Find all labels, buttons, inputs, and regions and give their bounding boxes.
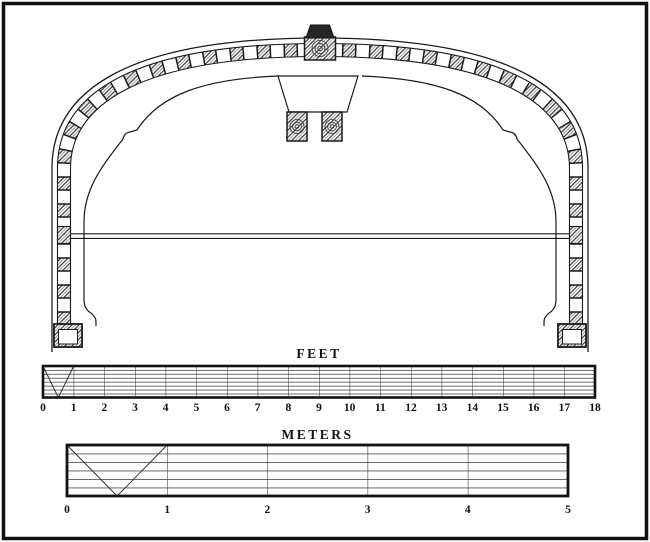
tie-rod-anchor-right: [570, 227, 583, 244]
feet-scale-title: FEET: [296, 346, 341, 361]
tick-label: 1: [164, 504, 170, 516]
tick-label: 7: [255, 402, 261, 414]
tick-label: 4: [163, 402, 169, 414]
tick-label: 0: [64, 504, 70, 516]
tick-label: 4: [465, 504, 471, 516]
foot-right: [558, 324, 586, 347]
arch-structure: [52, 25, 588, 352]
tick-label: 14: [467, 402, 479, 414]
tick-label: 3: [365, 504, 371, 516]
meters-scale: METERS 0 1 2 3 4 5: [64, 427, 571, 516]
feet-scale-vlines: [43, 366, 595, 398]
figure-canvas: FEET 0 1 2 3 4 5 6 7 8 9 10 11 12 1: [0, 0, 650, 542]
tick-label: 16: [528, 402, 540, 414]
tick-label: 2: [101, 402, 107, 414]
tick-label: 12: [405, 402, 417, 414]
tick-label: 5: [565, 504, 571, 516]
tick-label: 8: [285, 402, 291, 414]
tick-label: 18: [589, 402, 601, 414]
arch-band-blocks-right: [320, 50, 576, 325]
tick-label: 0: [40, 402, 46, 414]
feet-tick-labels: 0 1 2 3 4 5 6 7 8 9 10 11 12 13 14 15 16…: [40, 402, 601, 414]
tick-label: 2: [265, 504, 271, 516]
tick-label: 17: [559, 402, 571, 414]
tick-label: 3: [132, 402, 138, 414]
inner-contour-left: [84, 76, 278, 326]
meters-scale-title: METERS: [281, 427, 353, 442]
inner-contour-right: [362, 76, 556, 326]
ridge-trapezoid: [278, 76, 358, 112]
tick-label: 6: [224, 402, 230, 414]
keystone-cap: [306, 25, 334, 38]
arch-section-drawing: FEET 0 1 2 3 4 5 6 7 8 9 10 11 12 1: [0, 0, 650, 542]
tick-label: 13: [436, 402, 448, 414]
foot-left: [54, 324, 82, 347]
ridge-assembly: [278, 76, 358, 141]
feet-scale: FEET 0 1 2 3 4 5 6 7 8 9 10 11 12 1: [40, 346, 601, 414]
tick-label: 15: [497, 402, 509, 414]
band-outer-rail-right: [320, 44, 583, 326]
arch-outer-skin-right: [320, 38, 588, 352]
tick-label: 1: [71, 402, 77, 414]
tie-rod-anchor-left: [58, 227, 71, 244]
keystone: [305, 25, 336, 60]
arch-band-blocks-left: [64, 50, 320, 325]
tick-label: 5: [193, 402, 199, 414]
tick-label: 9: [316, 402, 322, 414]
arch-outer-skin-left: [52, 38, 320, 352]
tie-rod: [58, 227, 583, 244]
tick-label: 11: [375, 402, 386, 414]
tick-label: 10: [344, 402, 356, 414]
meters-tick-labels: 0 1 2 3 4 5: [64, 504, 571, 516]
